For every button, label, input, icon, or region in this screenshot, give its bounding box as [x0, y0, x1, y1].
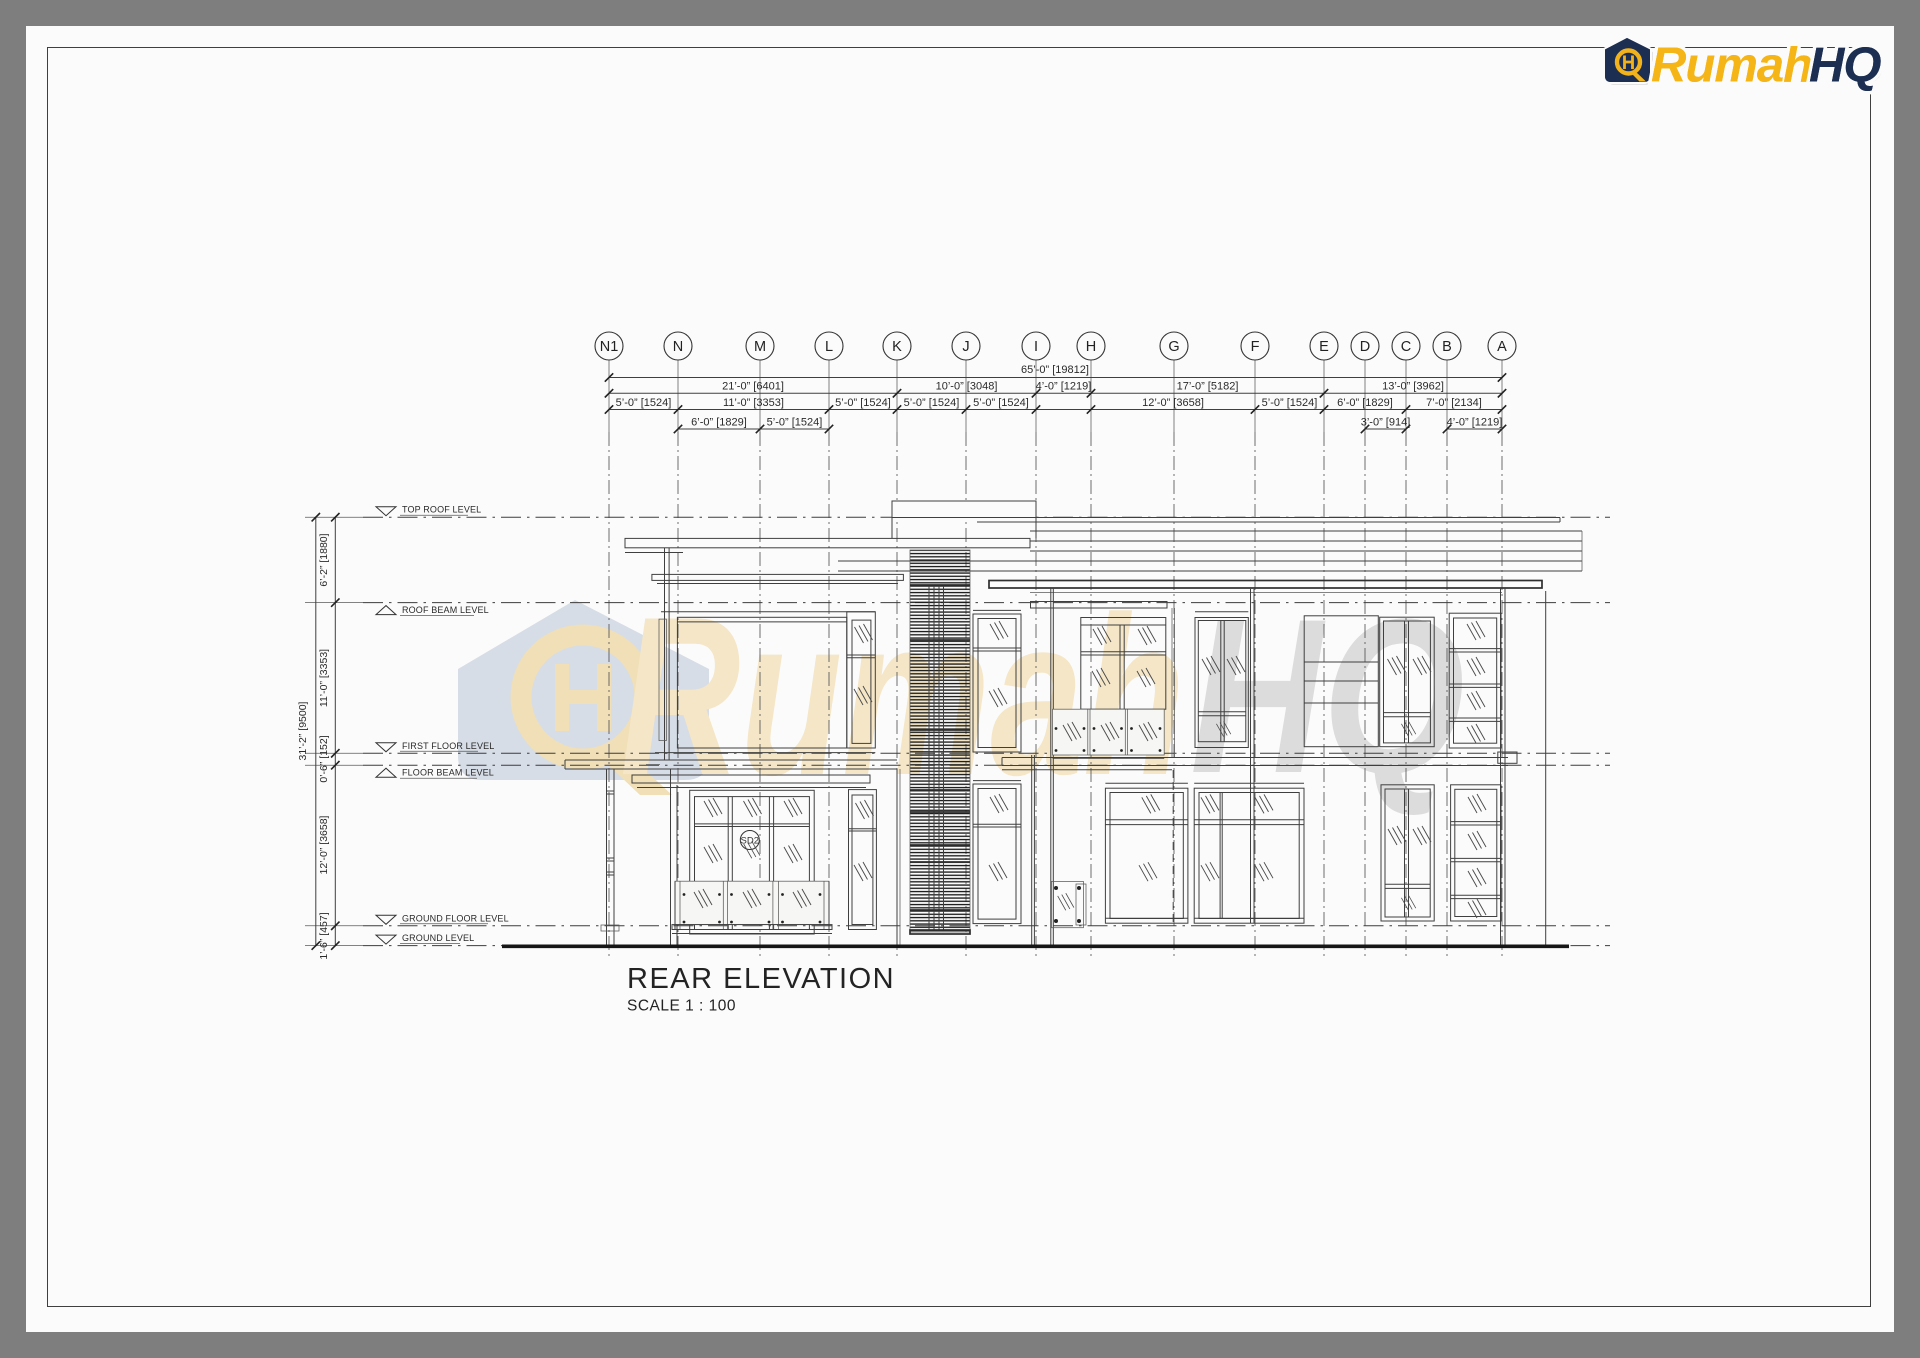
svg-text:N1: N1 [600, 339, 619, 355]
svg-text:65’-0” [19812]: 65’-0” [19812] [1021, 364, 1089, 376]
svg-text:11’-0” [3353]: 11’-0” [3353] [318, 649, 330, 707]
svg-text:GROUND FLOOR LEVEL: GROUND FLOOR LEVEL [402, 913, 509, 923]
svg-text:17’-0” [5182]: 17’-0” [5182] [1177, 381, 1239, 393]
svg-text:5’-0” [1524]: 5’-0” [1524] [616, 397, 672, 409]
svg-text:J: J [962, 339, 969, 355]
svg-text:12’-0” [3658]: 12’-0” [3658] [318, 815, 330, 874]
svg-text:F: F [1251, 339, 1260, 355]
svg-text:D: D [1360, 339, 1370, 355]
svg-text:K: K [892, 339, 902, 355]
svg-text:5’-0” [1524]: 5’-0” [1524] [835, 397, 891, 409]
svg-text:5’-0” [1524]: 5’-0” [1524] [1262, 397, 1318, 409]
svg-text:C: C [1401, 339, 1411, 355]
svg-text:Rumah: Rumah [620, 569, 1185, 822]
svg-text:4’-0” [1219]: 4’-0” [1219] [1036, 381, 1092, 393]
svg-text:SD2: SD2 [741, 836, 759, 847]
svg-text:GROUND LEVEL: GROUND LEVEL [402, 933, 474, 943]
svg-text:4’-0” [1219]: 4’-0” [1219] [1447, 416, 1503, 428]
svg-text:M: M [754, 339, 766, 355]
svg-text:13’-0” [3962]: 13’-0” [3962] [1382, 381, 1444, 393]
svg-text:FLOOR BEAM LEVEL: FLOOR BEAM LEVEL [402, 768, 494, 778]
svg-text:H: H [1086, 339, 1096, 355]
svg-text:I: I [1034, 339, 1038, 355]
svg-text:A: A [1497, 339, 1507, 355]
svg-text:SCALE 1 : 100: SCALE 1 : 100 [627, 998, 736, 1015]
svg-text:G: G [1168, 339, 1179, 355]
svg-text:L: L [825, 339, 833, 355]
svg-text:31’-2” [9500]: 31’-2” [9500] [297, 701, 309, 760]
svg-text:HQ: HQ [1809, 39, 1881, 93]
svg-text:21’-0” [6401]: 21’-0” [6401] [722, 381, 784, 393]
svg-text:6’-0” [1829]: 6’-0” [1829] [691, 416, 747, 428]
svg-text:TOP ROOF LEVEL: TOP ROOF LEVEL [402, 505, 481, 515]
svg-text:5’-0” [1524]: 5’-0” [1524] [973, 397, 1029, 409]
svg-text:0’-6” [152]: 0’-6” [152] [318, 735, 330, 782]
svg-text:11’-0” [3353]: 11’-0” [3353] [723, 397, 784, 409]
svg-text:12’-0” [3658]: 12’-0” [3658] [1142, 397, 1204, 409]
svg-text:REAR ELEVATION: REAR ELEVATION [627, 963, 895, 995]
svg-text:1’-6” [457]: 1’-6” [457] [318, 912, 330, 959]
svg-text:7’-0” [2134]: 7’-0” [2134] [1426, 397, 1482, 409]
svg-text:10’-0” [3048]: 10’-0” [3048] [936, 381, 998, 393]
svg-text:FIRST FLOOR LEVEL: FIRST FLOOR LEVEL [402, 741, 494, 751]
svg-text:Rumah: Rumah [1651, 39, 1812, 93]
svg-text:5’-0” [1524]: 5’-0” [1524] [904, 397, 960, 409]
svg-text:6’-0” [1829]: 6’-0” [1829] [1337, 397, 1393, 409]
svg-text:N: N [673, 339, 683, 355]
svg-text:E: E [1319, 339, 1329, 355]
svg-text:3’-0” [914]: 3’-0” [914] [1361, 416, 1411, 428]
svg-text:ROOF BEAM LEVEL: ROOF BEAM LEVEL [402, 605, 489, 615]
svg-text:HQ: HQ [1190, 573, 1465, 819]
svg-text:5’-0” [1524]: 5’-0” [1524] [767, 416, 823, 428]
svg-text:B: B [1442, 339, 1452, 355]
svg-text:6’-2” [1880]: 6’-2” [1880] [318, 533, 330, 586]
